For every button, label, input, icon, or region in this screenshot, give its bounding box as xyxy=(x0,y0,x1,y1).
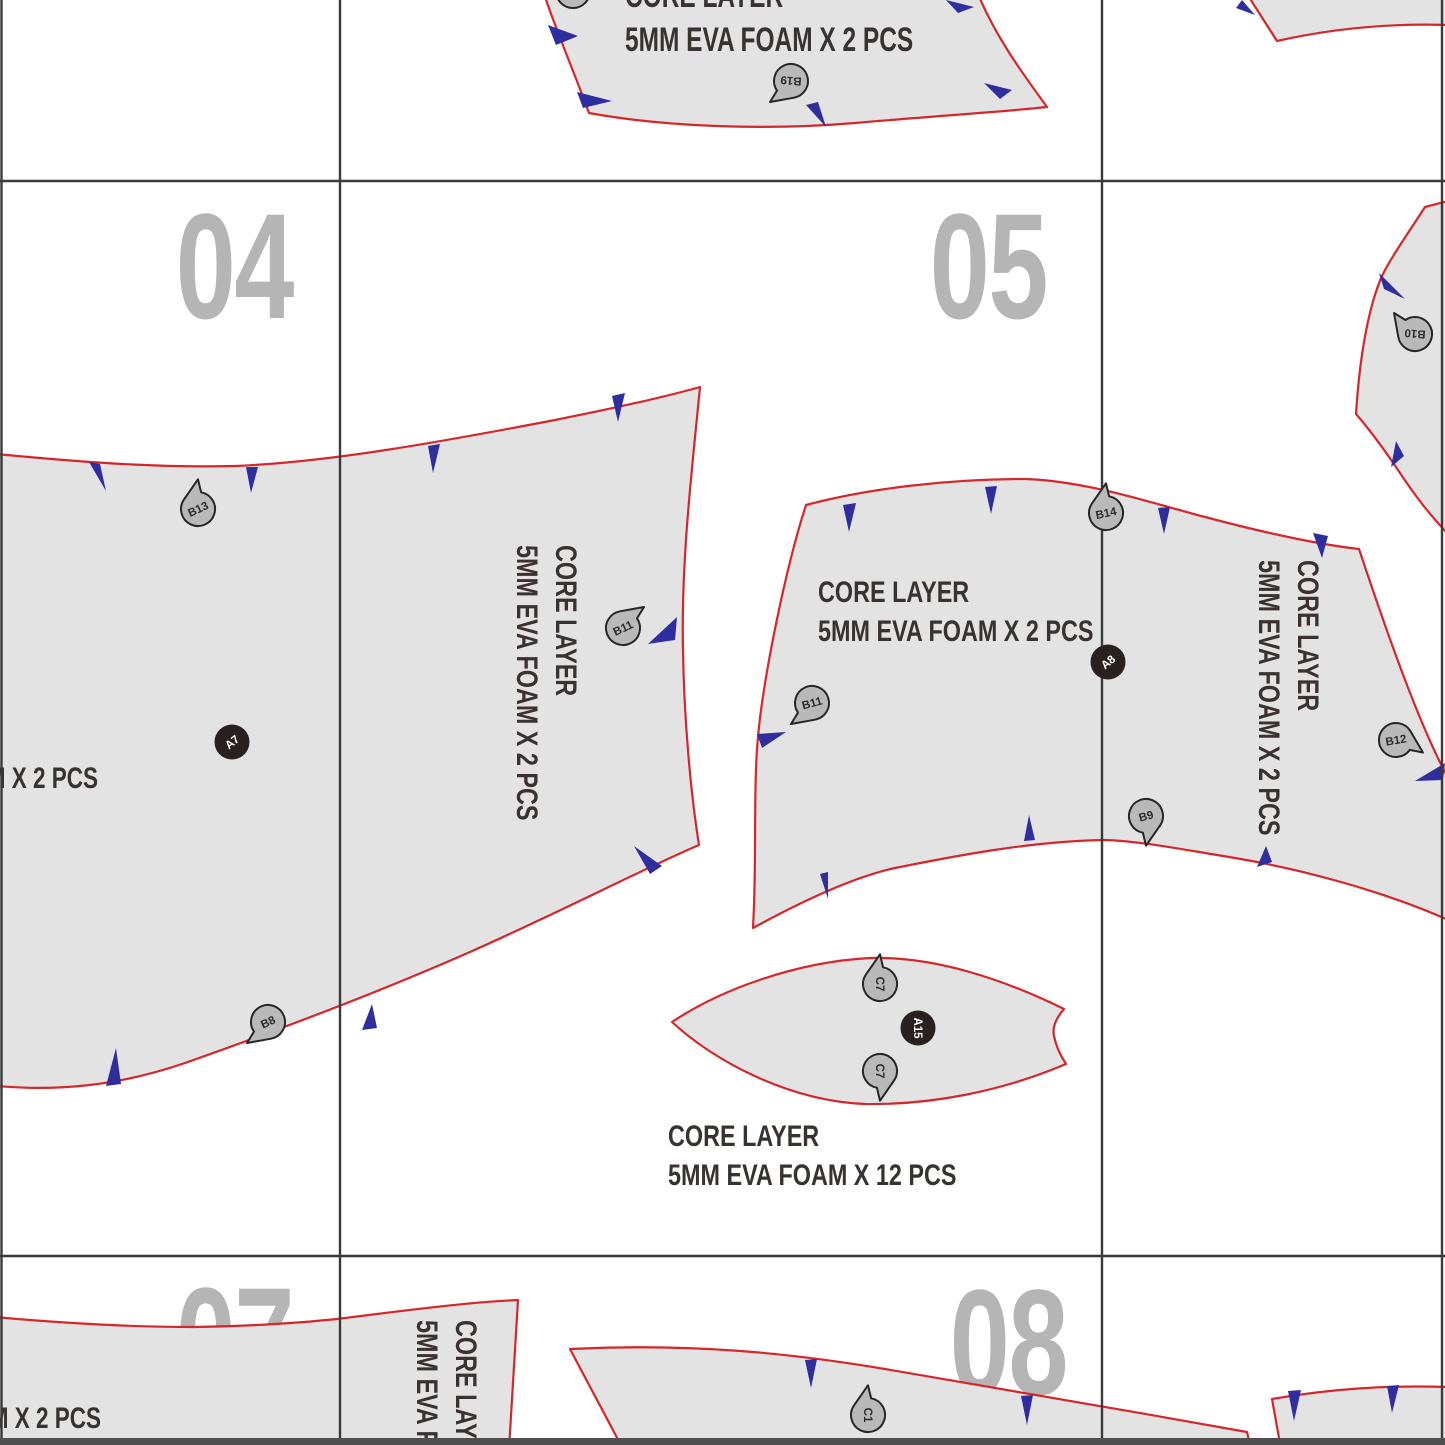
svg-text:B19: B19 xyxy=(780,73,802,87)
piece-center-right xyxy=(753,479,1445,928)
piece-top-right-corner xyxy=(1247,0,1445,41)
piece-label-line2: 5MM EVA FOAM X 12 PCS xyxy=(668,1158,957,1191)
piece-label-partial: 5MM EVA FOAM X 2 PCS xyxy=(0,1401,101,1435)
piece-label-line1: CORE LAYER xyxy=(1291,560,1324,711)
piece-right-edge xyxy=(1356,201,1445,534)
piece-bottom-center xyxy=(570,1347,1251,1445)
piece-label-line2: 5MM EVA FOAM X 2 PCS xyxy=(510,545,543,821)
marker-a8: A8 xyxy=(1091,645,1126,680)
piece-label-line1: CORE LAYER xyxy=(549,545,582,696)
piece-label-partial: 5MM EVA FOAM X 2 PCS xyxy=(0,761,98,795)
piece-label-line1: CORE LAYER xyxy=(818,575,969,608)
svg-text:B10: B10 xyxy=(1404,326,1426,340)
piece-label-line1: CORE LAYER xyxy=(625,0,783,15)
page-number-05: 05 xyxy=(930,183,1047,351)
piece-label-line1: CORE LAYER xyxy=(668,1119,819,1152)
piece-label-line2: 5MM EVA FOAM X 2 PCS xyxy=(410,1320,443,1445)
svg-text:A15: A15 xyxy=(911,1017,923,1039)
svg-text:C7: C7 xyxy=(873,977,885,992)
piece-label-line2: 5MM EVA FOAM X 2 PCS xyxy=(818,614,1094,647)
svg-text:C7: C7 xyxy=(873,1064,885,1079)
piece-label-line1: CORE LAYER xyxy=(449,1320,482,1445)
svg-text:C1: C1 xyxy=(861,1408,873,1423)
piece-left-large xyxy=(0,387,700,1088)
piece-label-line2: 5MM EVA FOAM X 2 PCS xyxy=(625,21,913,59)
pattern-canvas: 04 05 07 08 xyxy=(0,0,1445,1445)
pattern-sheet: 04 05 07 08 xyxy=(0,0,1445,1445)
piece-label-line2: 5MM EVA FOAM X 2 PCS xyxy=(1252,560,1285,836)
marker-a7: A7 xyxy=(215,725,250,760)
marker-a15: A15 xyxy=(901,1011,936,1046)
page-number-04: 04 xyxy=(176,183,294,351)
notch xyxy=(362,1004,377,1030)
piece-top-center xyxy=(544,0,1047,127)
bottom-edge-bar xyxy=(0,1438,1445,1445)
